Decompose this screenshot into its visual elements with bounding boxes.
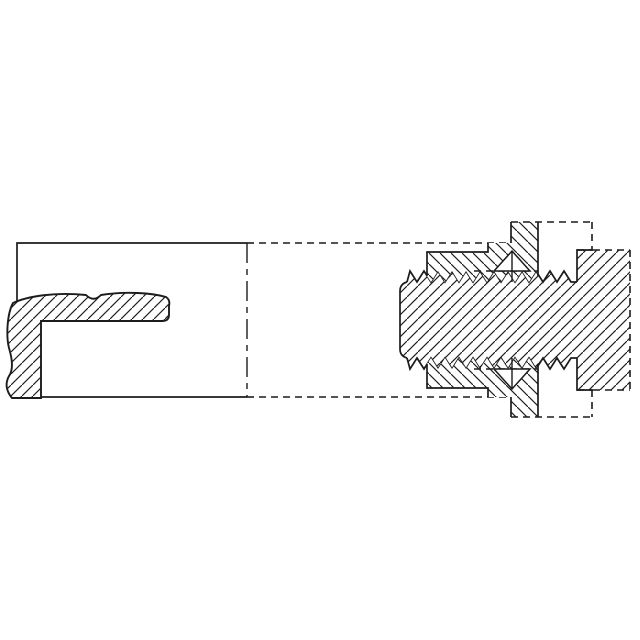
seal-sleeve-hatching (7, 293, 170, 398)
seal-sleeve (7, 293, 170, 398)
technical-drawing (0, 0, 640, 640)
technical-drawing-canvas (0, 0, 640, 640)
